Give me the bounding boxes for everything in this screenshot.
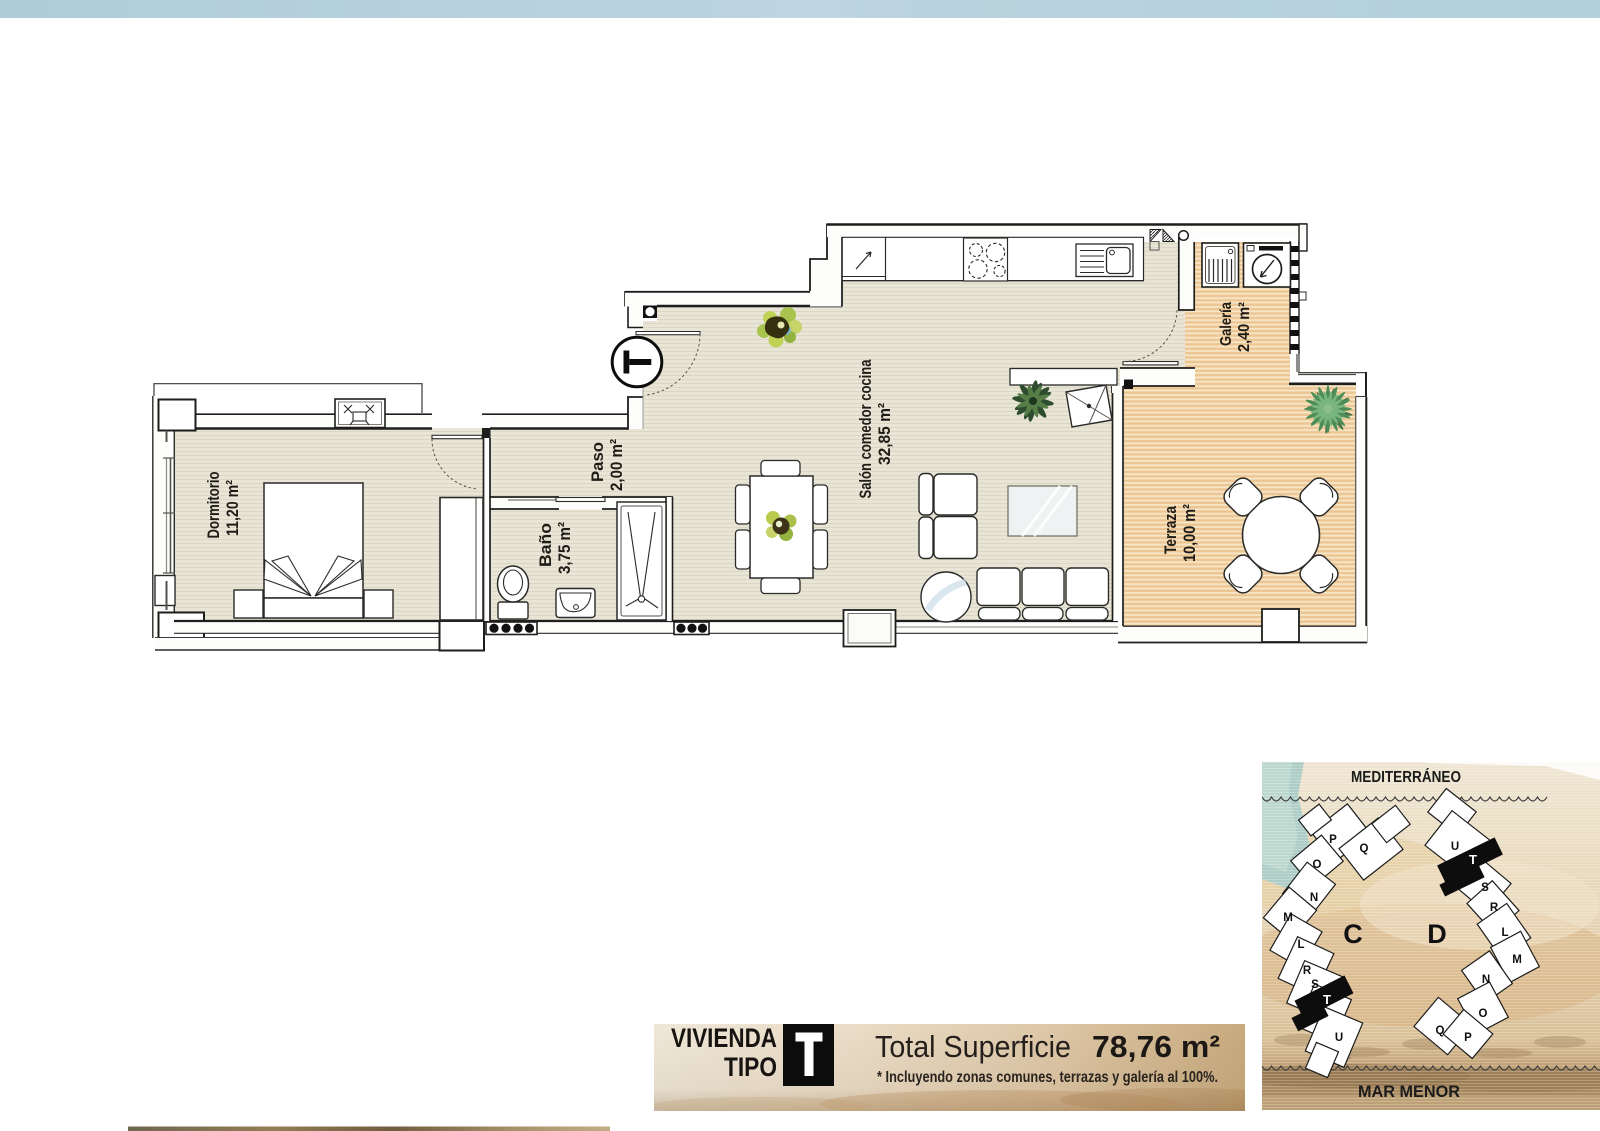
- svg-text:Total Superficie: Total Superficie: [875, 1029, 1071, 1064]
- svg-text:Dormitorio: Dormitorio: [205, 472, 223, 539]
- svg-text:N: N: [1310, 892, 1318, 904]
- svg-text:Galería: Galería: [1218, 302, 1235, 346]
- svg-text:P: P: [1464, 1032, 1472, 1044]
- svg-text:C: C: [1343, 919, 1363, 949]
- svg-text:Q: Q: [1436, 1025, 1445, 1037]
- svg-text:L: L: [1501, 927, 1508, 939]
- svg-text:P: P: [1329, 834, 1337, 846]
- svg-text:10,00 m²: 10,00 m²: [1181, 504, 1199, 562]
- svg-text:2,00 m²: 2,00 m²: [608, 439, 626, 491]
- svg-text:R: R: [1303, 965, 1312, 977]
- svg-text:O: O: [1479, 1008, 1488, 1020]
- svg-text:Baño: Baño: [537, 523, 555, 567]
- svg-text:U: U: [1335, 1032, 1343, 1044]
- svg-text:Salón comedor cocina: Salón comedor cocina: [857, 359, 875, 499]
- svg-text:N: N: [1482, 974, 1490, 986]
- svg-text:S: S: [1311, 979, 1319, 991]
- svg-text:S: S: [1481, 882, 1489, 894]
- svg-text:MAR MENOR: MAR MENOR: [1358, 1083, 1460, 1101]
- svg-text:11,20 m²: 11,20 m²: [224, 480, 242, 536]
- svg-text:U: U: [1451, 841, 1459, 853]
- svg-text:TIPO: TIPO: [724, 1052, 777, 1082]
- svg-text:* Incluyendo zonas comunes, te: * Incluyendo zonas comunes, terrazas y g…: [877, 1069, 1218, 1086]
- svg-text:32,85 m²: 32,85 m²: [876, 403, 894, 465]
- svg-text:2,40 m²: 2,40 m²: [1236, 302, 1253, 352]
- svg-text:L: L: [1297, 939, 1304, 951]
- svg-text:78,76 m²: 78,76 m²: [1092, 1029, 1220, 1064]
- svg-text:VIVIENDA: VIVIENDA: [671, 1023, 777, 1053]
- svg-text:R: R: [1490, 902, 1499, 914]
- svg-text:MEDITERRÁNEO: MEDITERRÁNEO: [1351, 767, 1461, 786]
- svg-text:Q: Q: [1360, 843, 1369, 855]
- svg-text:Terraza: Terraza: [1162, 505, 1180, 554]
- svg-text:T: T: [1469, 852, 1477, 867]
- svg-text:3,75 m²: 3,75 m²: [556, 522, 574, 574]
- svg-text:D: D: [1427, 919, 1447, 949]
- svg-text:M: M: [1512, 954, 1522, 966]
- svg-text:T: T: [1323, 992, 1331, 1007]
- svg-text:O: O: [1313, 859, 1322, 871]
- svg-text:Paso: Paso: [589, 442, 607, 482]
- svg-text:M: M: [1283, 912, 1293, 924]
